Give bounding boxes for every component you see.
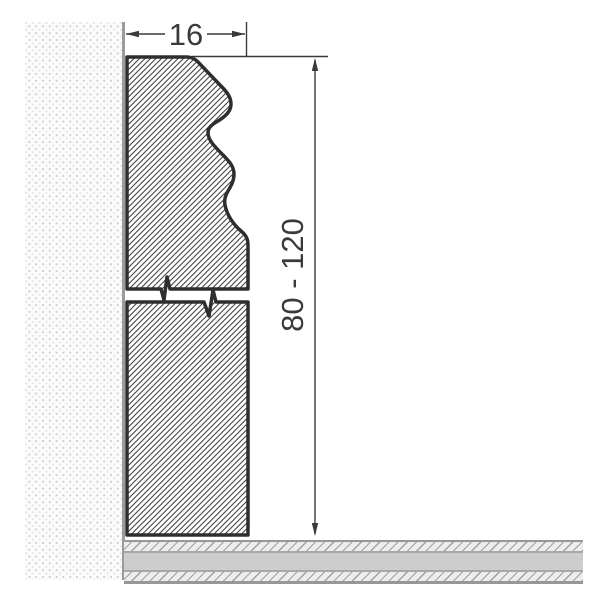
skirting-profile-upper [127,57,248,300]
arrow-right-icon [232,31,245,37]
arrow-up-icon [312,58,318,71]
drawing-overlay: 16 80 - 120 [0,0,604,604]
skirting-profile-lower [127,290,248,535]
technical-drawing-canvas: 16 80 - 120 [0,0,604,604]
width-dimension-label: 16 [169,17,203,52]
arrow-left-icon [126,31,139,37]
height-dimension-label: 80 - 120 [275,218,310,332]
arrow-down-icon [312,523,318,536]
